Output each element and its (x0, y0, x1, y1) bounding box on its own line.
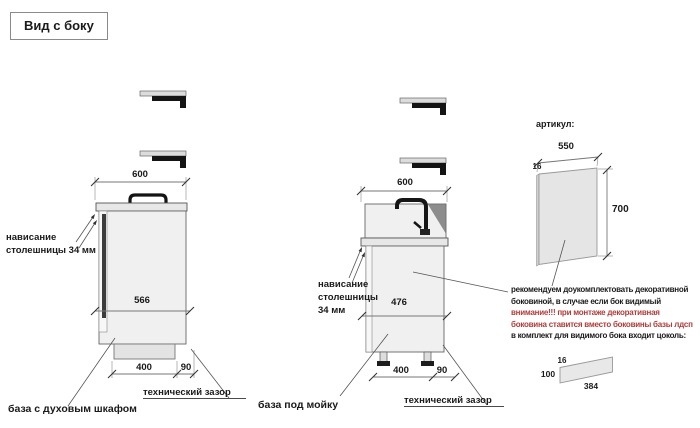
panel-thickness-dim: 16 (533, 162, 542, 171)
technical-drawing-page: Вид с боку 600 566 400 90 нависание стол… (0, 0, 700, 428)
panel-width-dim: 550 (558, 141, 574, 152)
oven-depth-dim: 400 (136, 362, 152, 373)
plinth-face (560, 357, 613, 383)
oven-plinth (114, 344, 175, 359)
sink-overhang-label-line2: столешницы (318, 292, 378, 303)
sink-depth-dim: 400 (393, 365, 409, 376)
sink-technical-gap-label: технический зазор (404, 395, 504, 407)
oven-overhang-label-line2: столешницы 34 мм (6, 245, 96, 256)
wall-bracket-icon (140, 151, 186, 168)
panel-note-line5: в комплект для видимого бока входит цоко… (511, 330, 700, 342)
panel-face (539, 168, 597, 265)
oven-overhang-label-line1: нависание (6, 232, 56, 243)
oven-countertop (96, 203, 187, 211)
wall-bracket-icon (140, 91, 186, 108)
plinth-length-dim: 384 (584, 381, 598, 391)
sink-base-caption: база под мойку (258, 399, 338, 411)
sink-base-drawing (361, 98, 448, 366)
panel-note-line1: рекомендуем доукомплектовать декоративно… (511, 284, 700, 296)
oven-door-strip (102, 214, 106, 318)
panel-height-dim: 700 (612, 204, 629, 215)
oven-top-width-dim: 600 (132, 169, 148, 180)
oven-body (99, 211, 186, 344)
plinth-height-dim: 100 (541, 369, 555, 379)
oven-base-drawing (96, 91, 187, 359)
sink-overhang-label-line3: 34 мм (318, 305, 345, 316)
sink-gap-dim: 90 (437, 365, 448, 376)
page-title-text: Вид с боку (24, 18, 94, 33)
article-label: артикул: (536, 119, 574, 129)
oven-gap-dim: 90 (181, 362, 192, 373)
drawing-linework (0, 0, 700, 428)
panel-note-line2: боковиной, в случае если бок видимый (511, 296, 700, 308)
oven-base-caption: база с духовым шкафом (8, 403, 137, 415)
page-title: Вид с боку (10, 12, 108, 40)
plinth-thickness-dim: 16 (558, 356, 567, 365)
sink-countertop (361, 238, 448, 246)
oven-technical-gap-label: технический зазор (143, 387, 246, 399)
sink-top-width-dim: 600 (397, 177, 413, 188)
wall-bracket-icon (400, 158, 446, 175)
side-panel-drawing (534, 153, 613, 286)
leg-icon (377, 352, 390, 366)
sink-inner-width-dim: 476 (391, 297, 407, 308)
sink-overhang-label-line1: нависание (318, 279, 368, 290)
plinth-drawing (560, 357, 613, 383)
oven-inner-width-dim: 566 (134, 295, 150, 306)
faucet-base (420, 229, 430, 235)
leg-icon (421, 352, 434, 366)
panel-note-text: рекомендуем доукомплектовать декоративно… (511, 284, 700, 342)
panel-note-warning-line2: боковина ставится вместо боковины базы л… (511, 319, 700, 331)
wall-bracket-icon (400, 98, 446, 115)
panel-note-warning-line1: внимание!!! при монтаже декоративная (511, 307, 700, 319)
oven-handle-icon (130, 195, 166, 203)
